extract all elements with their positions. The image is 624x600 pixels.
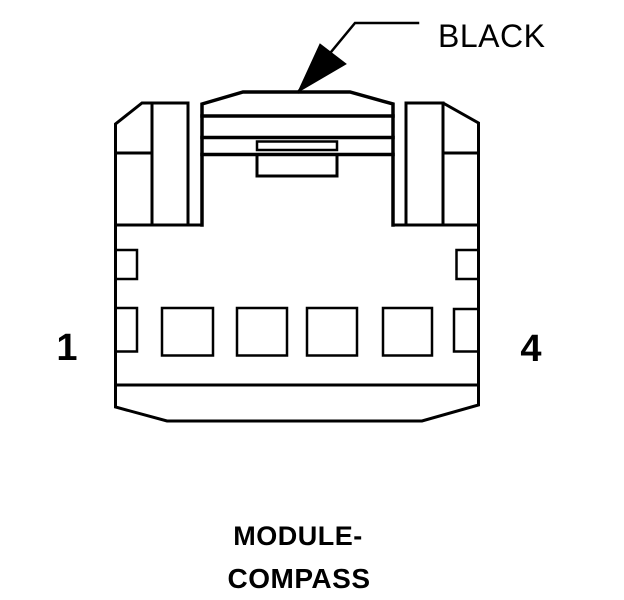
connector-pinout-diagram: BLACK 1 4 MODULE- COMPASS	[0, 0, 624, 600]
pin-cavity-2	[237, 308, 287, 356]
latch-tab-small	[257, 142, 337, 151]
caption-line-1: MODULE-	[233, 521, 362, 551]
pin-cavity-left-edge	[116, 308, 138, 352]
pin-label-4: 4	[520, 328, 541, 370]
wire-arrowhead-icon	[298, 44, 346, 92]
latch-tab-large	[257, 155, 337, 176]
pin-cavity-right-edge	[454, 309, 479, 352]
pin-cavity-1	[162, 308, 213, 356]
right-side-notch	[457, 250, 479, 279]
pin-label-1: 1	[56, 327, 77, 369]
wire-color-label: BLACK	[438, 18, 545, 54]
connector-drawing: BLACK 1 4 MODULE- COMPASS	[0, 0, 624, 600]
latch-column	[202, 92, 393, 225]
left-side-notch	[116, 250, 138, 279]
pin-cavity-4	[383, 308, 432, 356]
caption-line-2: COMPASS	[228, 563, 371, 594]
pin-cavity-3	[307, 308, 357, 356]
